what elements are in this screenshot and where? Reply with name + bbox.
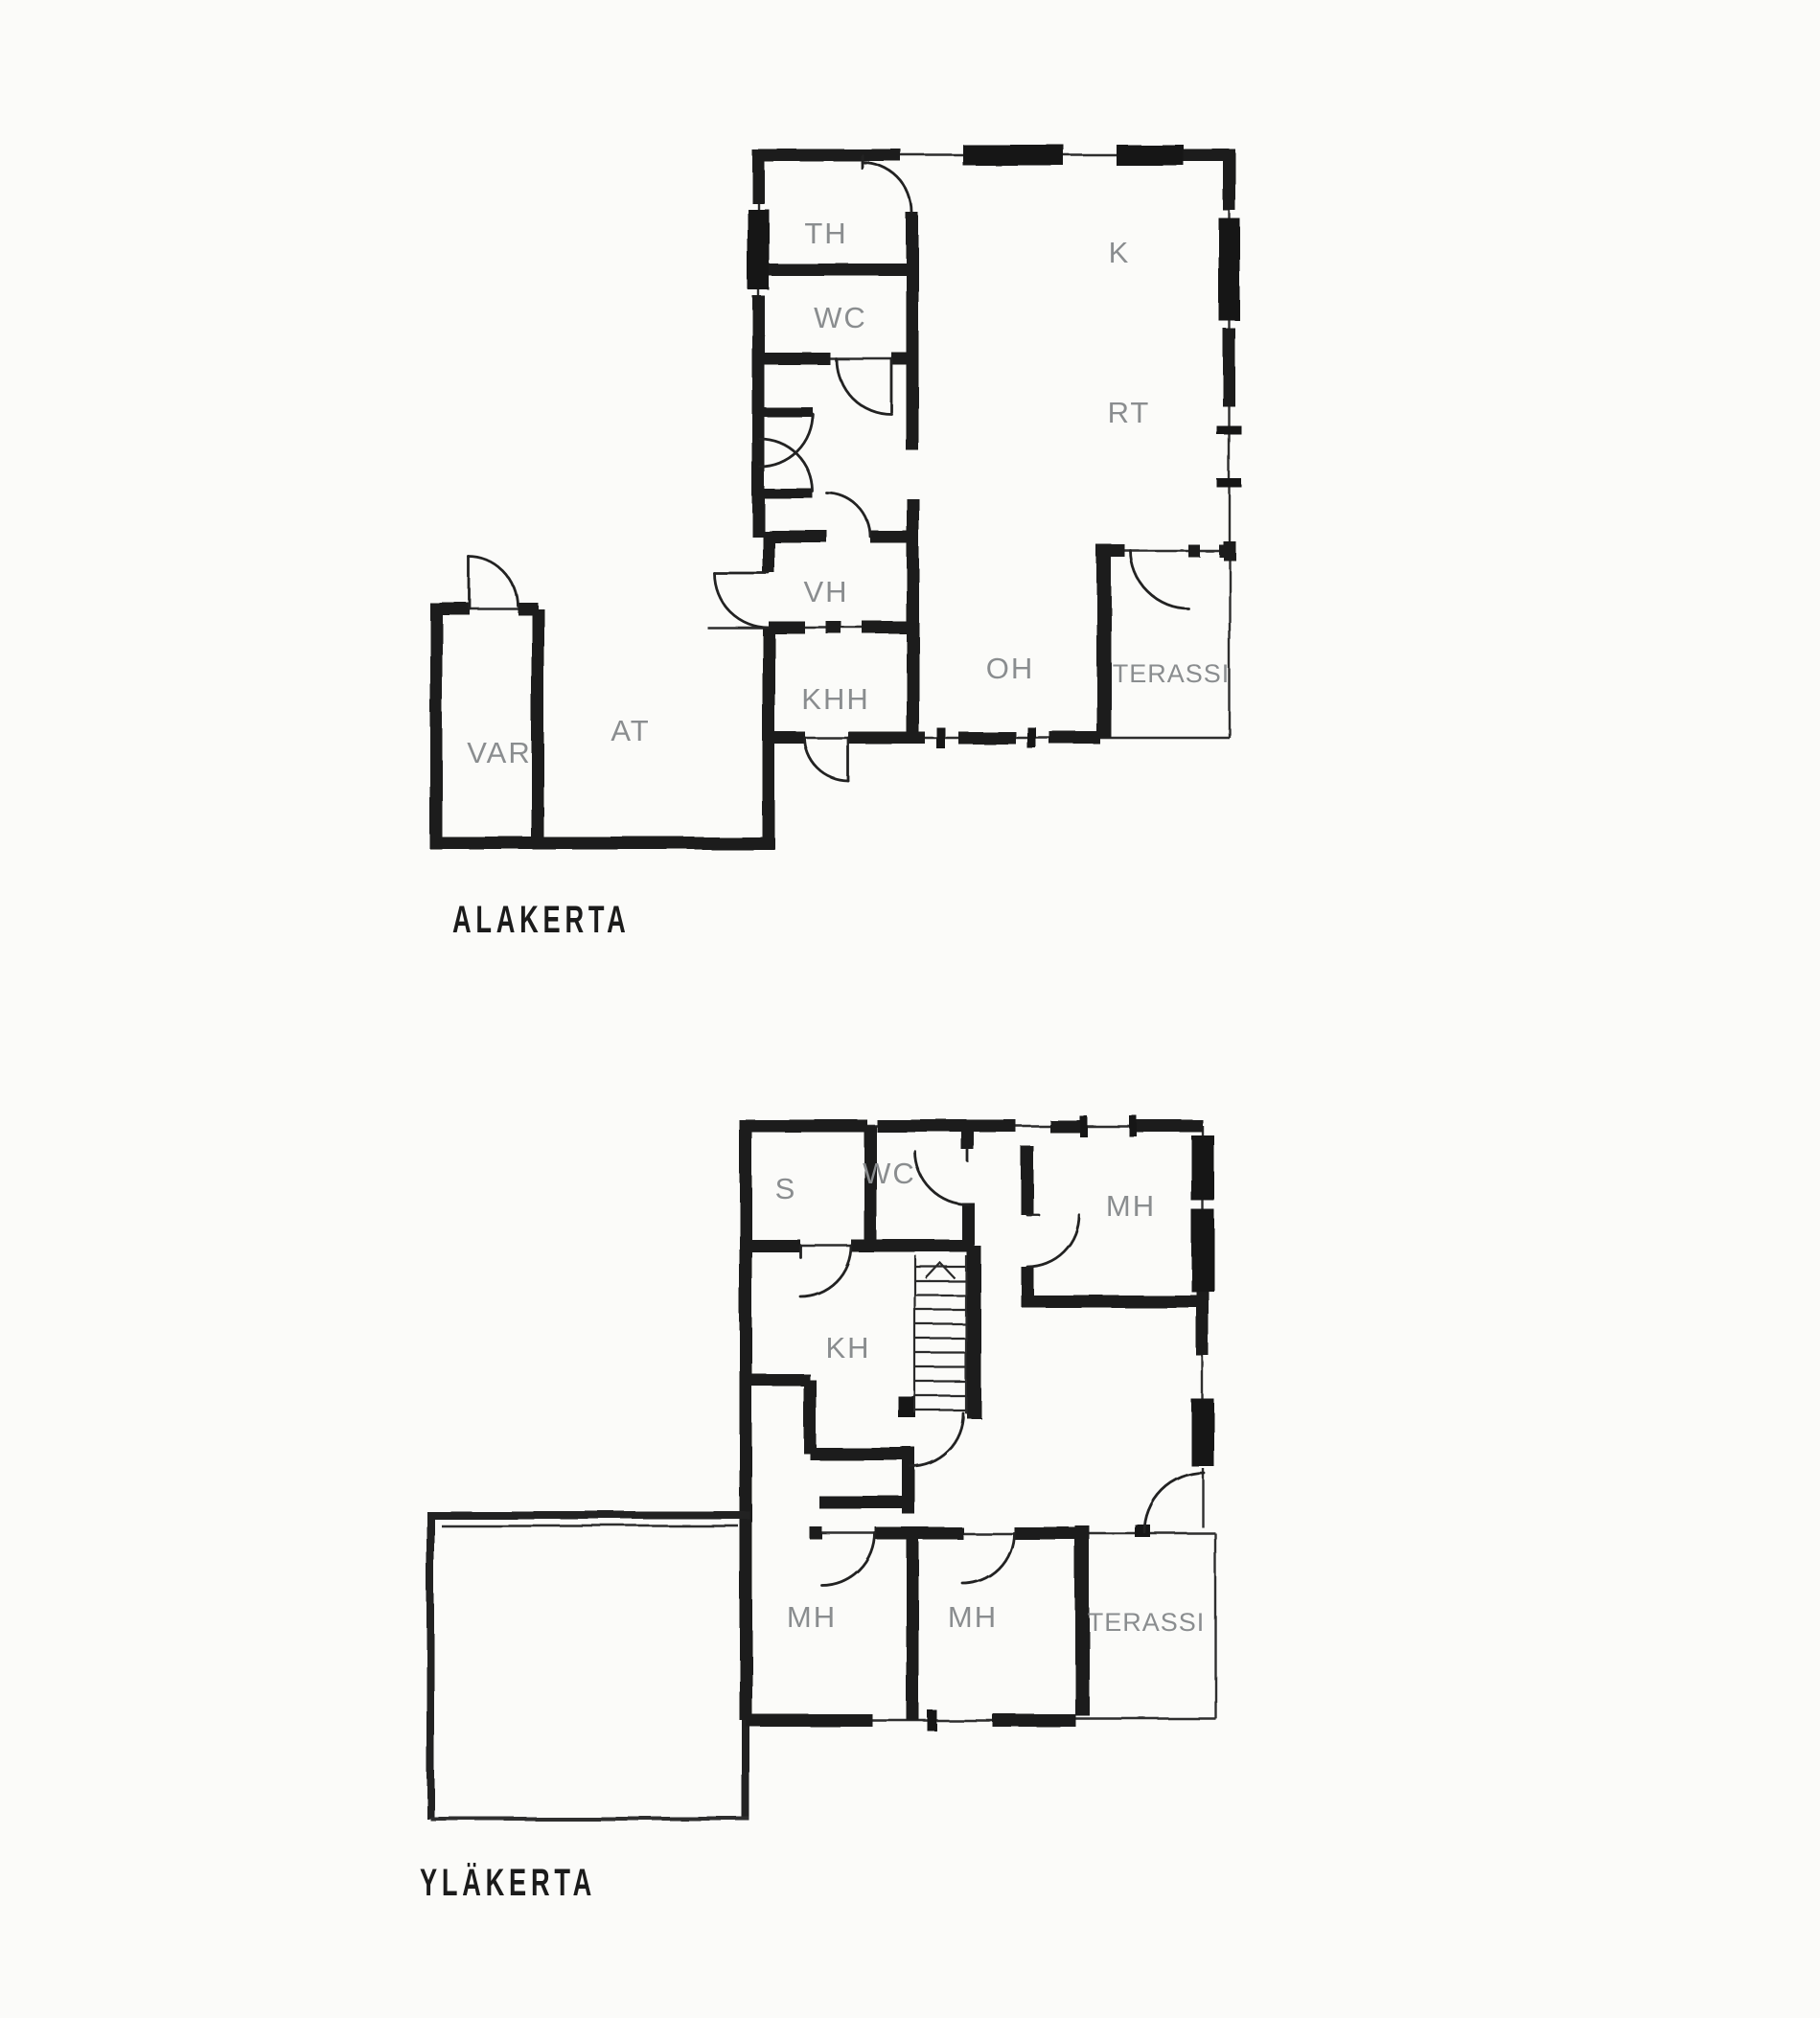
room-labels-ylakerta: S WC MH KH MH MH TERASSI: [775, 1157, 1206, 1637]
stair-direction-arrow-icon: [926, 1263, 955, 1278]
room-label-oh: OH: [986, 652, 1035, 685]
room-label-khh: KHH: [801, 682, 869, 716]
walls: [746, 1120, 1203, 1819]
windows: [899, 1115, 1214, 1731]
floor-plan-drawing: TH K WC RT VH OH TERASSI KHH AT VAR ALAK…: [0, 0, 1820, 2018]
room-label-s: S: [775, 1172, 797, 1205]
room-label-wc-1: WC: [814, 301, 867, 334]
roof-deck-outline: [430, 1515, 749, 1819]
plan-title-ylakerta: YLÄKERTA: [420, 1862, 596, 1904]
room-label-mh-3: MH: [948, 1600, 998, 1634]
room-labels-alakerta: TH K WC RT VH OH TERASSI KHH AT VAR: [467, 217, 1230, 769]
plan-ylakerta: S WC MH KH MH MH TERASSI YLÄKERTA: [420, 1115, 1215, 1904]
plan-alakerta: TH K WC RT VH OH TERASSI KHH AT VAR ALAK…: [430, 145, 1242, 941]
room-label-vh: VH: [803, 575, 848, 608]
room-label-terassi-2: TERASSI: [1088, 1608, 1206, 1637]
room-label-terassi-1: TERASSI: [1113, 659, 1231, 688]
room-label-wc-2: WC: [863, 1157, 916, 1190]
room-label-th: TH: [804, 217, 847, 250]
floor-plan-page: TH K WC RT VH OH TERASSI KHH AT VAR ALAK…: [0, 0, 1820, 2018]
room-label-kh: KH: [825, 1331, 870, 1364]
plan-title-alakerta: ALAKERTA: [452, 899, 631, 941]
room-label-k: K: [1109, 236, 1131, 269]
staircase: [915, 1255, 966, 1413]
room-label-at: AT: [611, 714, 650, 747]
room-label-mh-1: MH: [1106, 1189, 1156, 1223]
room-label-rt: RT: [1108, 396, 1151, 429]
room-label-mh-2: MH: [787, 1600, 837, 1634]
room-label-var: VAR: [467, 736, 531, 769]
